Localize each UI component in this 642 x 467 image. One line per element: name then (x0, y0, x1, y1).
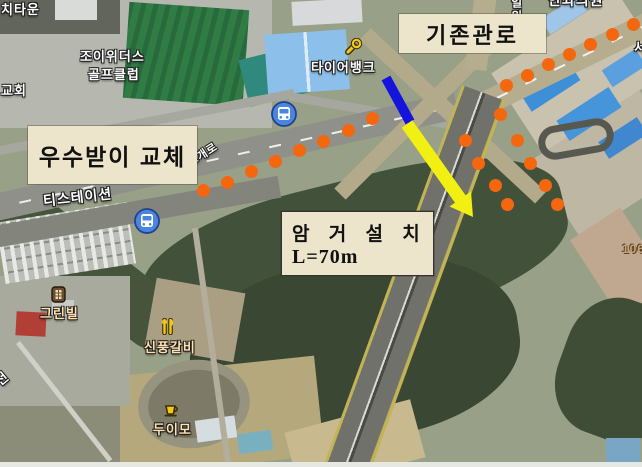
gutter-replacement-label-box: 우수받이 교체 (28, 126, 197, 184)
catch-basin-dot-marker (501, 198, 514, 211)
catch-basin-dot-marker (563, 48, 576, 61)
culvert-install-label-box: 암 거 설 치 L=70m (281, 211, 434, 276)
catch-basin-dot-marker (524, 157, 537, 170)
map-label-shinpung: 신풍갈비 (144, 341, 196, 355)
catch-basin-dot-marker (459, 134, 472, 147)
map-label-clinic: 안좌의원 (548, 0, 604, 8)
terrain-building-white2 (291, 0, 362, 26)
catch-basin-dot-marker (627, 18, 640, 31)
catch-basin-dot-marker (269, 155, 282, 168)
terrain-building-bottomright (606, 438, 640, 464)
catch-basin-dot-marker (539, 179, 552, 192)
catch-basin-dot-marker (584, 38, 597, 51)
catch-basin-dot-marker (293, 144, 306, 157)
map-label-duimo: 두이모 (153, 423, 192, 437)
catch-basin-dot-marker (551, 198, 564, 211)
map-label-church: 교회 (1, 84, 27, 98)
catch-basin-dot-marker (521, 69, 534, 82)
culvert-length-label: L=70m (292, 246, 358, 269)
catch-basin-dot-marker (500, 79, 513, 92)
bus-stop-icon[interactable] (271, 101, 297, 132)
catch-basin-dot-marker (221, 176, 234, 189)
existing-pipeline-label-box: 기존관로 (399, 14, 546, 53)
catch-basin-dot-marker (472, 157, 485, 170)
catch-basin-dot-marker (342, 124, 355, 137)
terrain-building-white (55, 0, 97, 20)
catch-basin-dot-marker (542, 58, 555, 71)
building-icon[interactable] (50, 286, 67, 308)
catch-basin-dot-marker (245, 165, 258, 178)
catch-basin-dot-marker (317, 135, 330, 148)
gutter-replacement-label: 우수받이 교체 (39, 138, 186, 172)
culvert-install-label: 암 거 설 치 (292, 219, 427, 246)
catch-basin-dot-marker (494, 108, 507, 121)
map-label-golf-line1: 조이위더스 (80, 50, 145, 64)
wrench-icon[interactable] (344, 38, 362, 61)
map-label-richtown: 치타운 (1, 3, 40, 17)
bus-stop-icon[interactable] (134, 208, 160, 239)
cafe-icon[interactable] (162, 401, 180, 424)
restaurant-icon[interactable] (159, 318, 176, 340)
map-edge-strip (0, 462, 642, 467)
catch-basin-dot-marker (606, 28, 619, 41)
map-label-r106: 106 (622, 243, 642, 256)
map-label-greenvil: 그린빌 (40, 307, 79, 321)
catch-basin-dot-marker (511, 134, 524, 147)
existing-pipeline-label: 기존관로 (426, 18, 519, 50)
catch-basin-dot-marker (366, 112, 379, 125)
catch-basin-dot-marker (197, 184, 210, 197)
terrain-vegetation4 (540, 284, 642, 457)
terrain-field-corner (0, 400, 120, 467)
map-viewport[interactable]: 치타운조이위더스골프클럽교회타이어뱅크티스테이션쇠고개로그린빌신풍갈비두이모안좌… (0, 0, 642, 467)
map-label-tirebank: 타이어뱅크 (311, 61, 376, 75)
map-label-golf-line2: 골프클럽 (88, 68, 140, 82)
map-label-seo: 서 (634, 41, 642, 55)
catch-basin-dot-marker (489, 179, 502, 192)
